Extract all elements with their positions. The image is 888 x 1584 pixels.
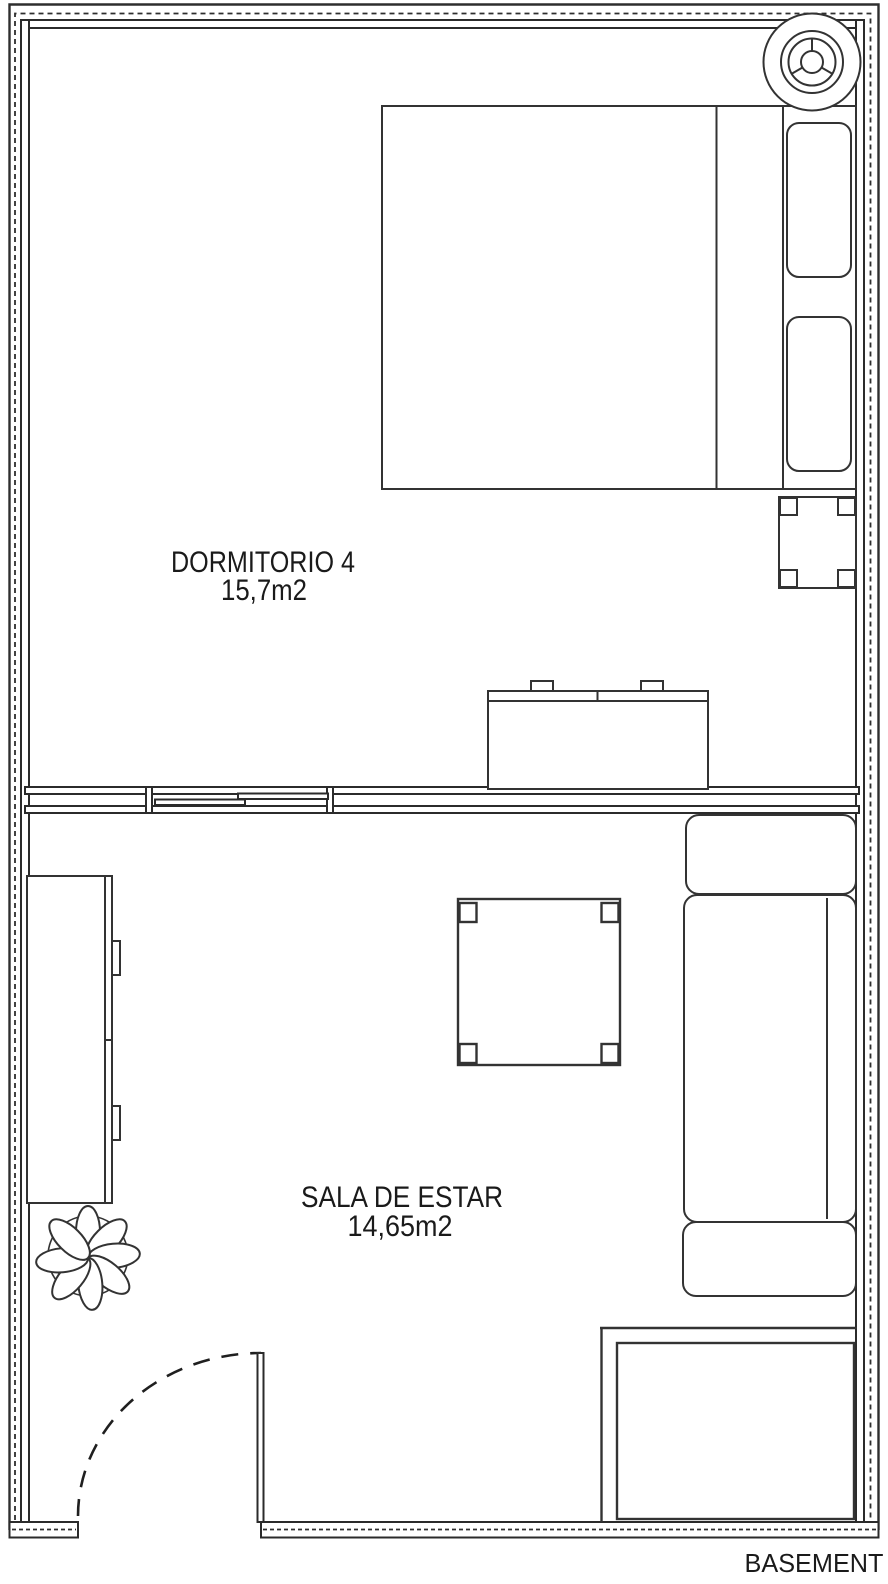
floor-plan: DORMITORIO 4 15,7m2 SALA DE ESTAR 14,65m…	[0, 0, 888, 1584]
ceiling-fan	[764, 14, 861, 111]
dresser	[488, 681, 708, 789]
sofa-seat	[684, 895, 856, 1222]
coffee-table-top	[458, 899, 620, 1065]
sliding-door-panel-right	[238, 794, 328, 800]
tv-cabinet-handle	[112, 941, 120, 975]
nightstand-leg	[780, 570, 797, 587]
floor-title: BASEMENT	[745, 1550, 884, 1578]
coffee-table-leg	[460, 903, 477, 922]
coffee-table-leg	[602, 1044, 619, 1063]
dresser-handle	[531, 681, 553, 691]
ceiling-fan-hub	[801, 51, 823, 73]
nightstand-leg	[838, 498, 855, 515]
floor-plan-drawing: DORMITORIO 4 15,7m2 SALA DE ESTAR 14,65m…	[0, 0, 888, 1584]
bottom-wall-right-segment	[261, 1522, 879, 1538]
entrance-door	[78, 1353, 264, 1522]
coffee-table	[458, 899, 620, 1065]
tv-cabinet	[27, 876, 120, 1203]
tv-cabinet-handle	[112, 1106, 120, 1140]
nightstand	[779, 497, 856, 588]
nightstand-leg	[780, 498, 797, 515]
sofa-armrest-bottom	[683, 1222, 856, 1296]
wall-top	[21, 20, 864, 28]
plant	[35, 1206, 141, 1311]
stair-nook-inner	[617, 1343, 854, 1519]
bed-outline	[382, 106, 856, 489]
wall-left	[21, 20, 29, 1523]
pillow-bottom	[787, 317, 851, 471]
door-leaf	[258, 1353, 264, 1522]
tv-cabinet-body	[27, 876, 105, 1203]
double-bed	[382, 106, 856, 489]
sliding-door-panel-left	[155, 800, 245, 806]
door-swing-arc	[78, 1353, 261, 1516]
dresser-handle	[641, 681, 663, 691]
wall-right	[856, 20, 864, 1523]
sliding-door-jamb-left	[146, 787, 152, 813]
stair-nook	[600, 1327, 857, 1522]
coffee-table-leg	[602, 903, 619, 922]
livingroom-area-label: 14,65m2	[348, 1210, 453, 1243]
pillow-top	[787, 123, 851, 277]
coffee-table-leg	[460, 1044, 477, 1063]
dresser-body	[488, 691, 708, 789]
sofa-armrest-top	[686, 815, 856, 894]
nightstand-leg	[838, 570, 855, 587]
plant-leaves	[35, 1206, 141, 1311]
sofa	[683, 815, 856, 1296]
bedroom-area-label: 15,7m2	[221, 574, 307, 607]
